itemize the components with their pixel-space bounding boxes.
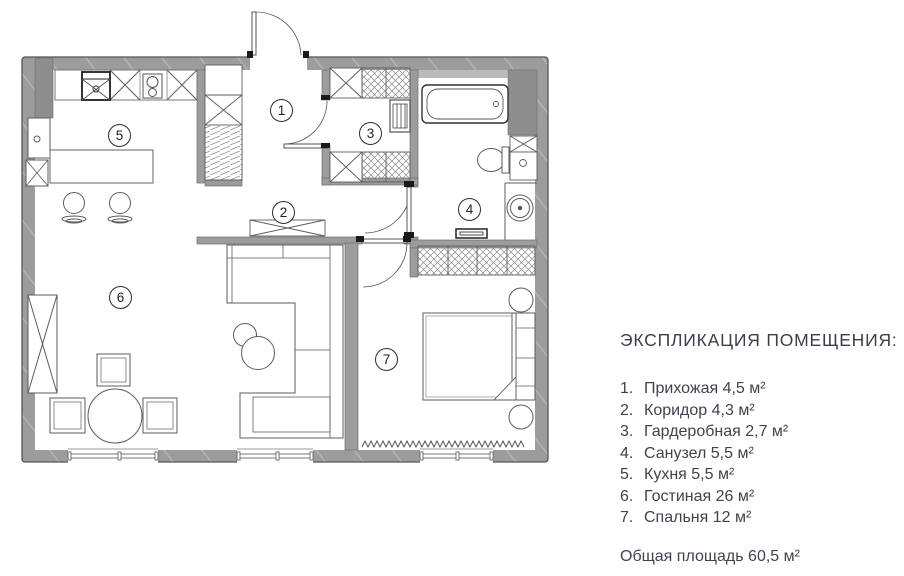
legend-item-number: 5. xyxy=(620,464,644,486)
kitchen-island xyxy=(50,150,153,183)
bed xyxy=(423,313,535,400)
legend-title: ЭКСПЛИКАЦИЯ ПОМЕЩЕНИЯ: xyxy=(620,330,900,351)
legend-item-label: Коридор 4,3 м² xyxy=(644,402,755,419)
floor-plan-drawing xyxy=(0,0,604,576)
fridge xyxy=(26,118,50,186)
room-badge-6: 6 xyxy=(109,286,132,309)
legend-item-number: 2. xyxy=(620,400,644,422)
dining-table xyxy=(88,389,142,443)
room-badge-5: 5 xyxy=(108,124,131,147)
legend-item: 3.Гардеробная 2,7 м² xyxy=(620,421,900,443)
legend-items: 1.Прихожая 4,5 м² 2.Коридор 4,3 м² 3.Гар… xyxy=(620,378,900,529)
washer-cabinet xyxy=(510,136,537,180)
room-badge-4: 4 xyxy=(458,198,481,221)
room-badge-1: 1 xyxy=(270,99,293,122)
legend-item: 6.Гостиная 26 м² xyxy=(620,486,900,508)
living-wardrobe xyxy=(28,295,57,393)
legend-item: 7.Спальня 12 м² xyxy=(620,507,900,529)
kitchen-counter xyxy=(55,70,197,100)
legend-item-number: 3. xyxy=(620,421,644,443)
legend-item: 1.Прихожая 4,5 м² xyxy=(620,378,900,400)
legend-item: 4.Санузел 5,5 м² xyxy=(620,443,900,465)
legend-item: 5.Кухня 5,5 м² xyxy=(620,464,900,486)
legend-item: 2.Коридор 4,3 м² xyxy=(620,400,900,422)
legend-total: Общая площадь 60,5 м² xyxy=(620,548,900,566)
legend: ЭКСПЛИКАЦИЯ ПОМЕЩЕНИЯ: 1.Прихожая 4,5 м²… xyxy=(620,330,900,566)
toilet xyxy=(478,147,510,173)
dresser xyxy=(390,100,410,132)
room-badge-3: 3 xyxy=(359,122,382,145)
legend-item-number: 4. xyxy=(620,443,644,465)
floor-plan-page: { "legend": { "title": "ЭКСПЛИКАЦИЯ ПОМЕ… xyxy=(0,0,904,576)
towel-rail xyxy=(456,229,487,238)
legend-item-label: Кухня 5,5 м² xyxy=(644,466,734,483)
legend-item-number: 7. xyxy=(620,507,644,529)
hall-storage-column xyxy=(205,65,242,180)
kitchen-sink xyxy=(82,72,110,100)
room-badge-2: 2 xyxy=(272,201,295,224)
room-badge-7: 7 xyxy=(375,348,398,371)
legend-item-label: Санузел 5,5 м² xyxy=(644,445,754,462)
shoe-cabinet xyxy=(205,125,242,180)
legend-item-number: 6. xyxy=(620,486,644,508)
legend-item-label: Гостиная 26 м² xyxy=(644,488,754,505)
bedroom-wardrobe xyxy=(418,246,535,275)
bathtub xyxy=(422,85,508,123)
legend-item-label: Гардеробная 2,7 м² xyxy=(644,423,788,440)
floor-plan: 1 2 3 4 5 6 7 xyxy=(0,0,604,576)
entrance-door xyxy=(252,12,301,55)
legend-item-label: Спальня 12 м² xyxy=(644,509,751,526)
legend-item-label: Прихожая 4,5 м² xyxy=(644,380,766,397)
legend-item-number: 1. xyxy=(620,378,644,400)
